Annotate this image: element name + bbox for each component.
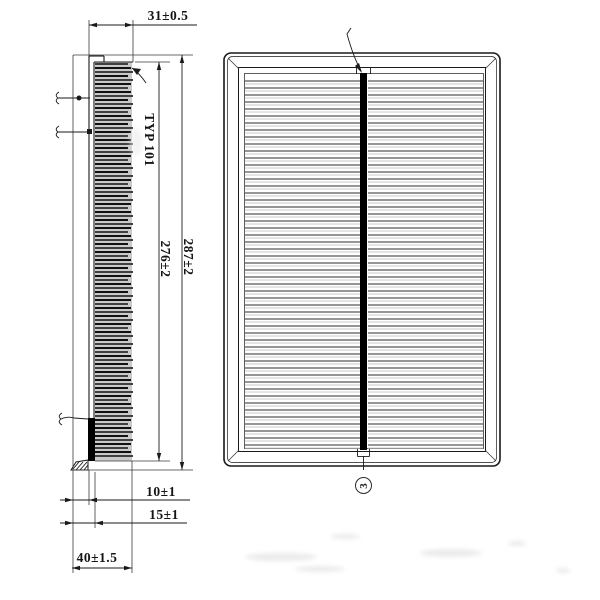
watermark-smudge [130, 128, 142, 156]
watermark-smudge [556, 568, 570, 573]
side-view [71, 56, 133, 470]
watermark-smudge [245, 553, 317, 561]
dim-31-label: 31±0.5 [137, 8, 199, 23]
balloon-3-label: 3 [358, 483, 370, 489]
front-view [224, 53, 500, 470]
dim-287-label: 287±2 [181, 228, 196, 286]
drawing-linework [0, 0, 600, 600]
dim-40-label: 40±1.5 [66, 550, 128, 565]
watermark-smudge [420, 549, 482, 557]
watermark-smudge [330, 534, 360, 539]
technical-drawing-sheet: 31±0.5 TYP 101 276±2 287±2 10±1 15±1 40±… [0, 0, 600, 600]
dim-10-label: 10±1 [136, 484, 186, 499]
watermark-smudge [508, 541, 526, 546]
balloon-3: 3 [355, 477, 372, 494]
typ-101-note: TYP 101 [142, 111, 157, 169]
dim-15-label: 15±1 [139, 507, 189, 522]
watermark-smudge [295, 566, 345, 572]
dim-276-label: 276±2 [158, 230, 173, 288]
